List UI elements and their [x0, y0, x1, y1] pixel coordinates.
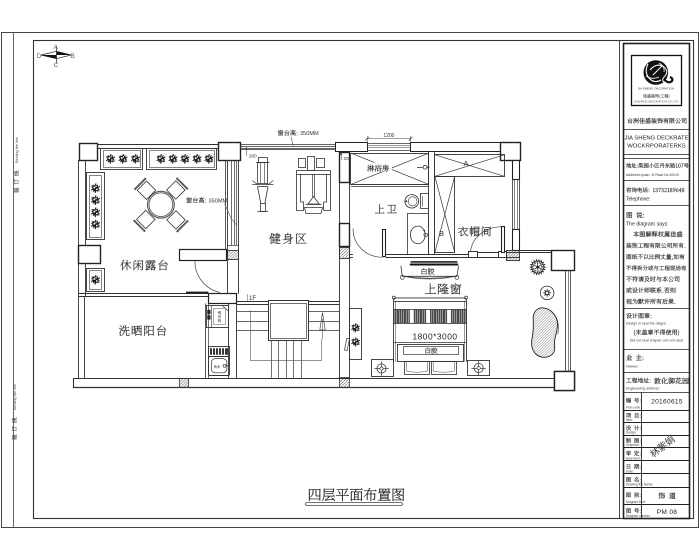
svg-text:1800*3000: 1800*3000 — [412, 332, 457, 342]
svg-text:C: C — [54, 63, 59, 69]
svg-text:Item:: Item: — [626, 418, 633, 422]
svg-text:20160615: 20160615 — [651, 399, 683, 406]
svg-text:Engineering address:: Engineering address: — [626, 387, 660, 391]
svg-text:Did not seal chapter can not u: Did not seal chapter can not used — [630, 339, 684, 343]
svg-text:Binding the line: Binding the line — [15, 137, 19, 163]
svg-text:JIASHENG DECORATION CO.,LTD: JIASHENG DECORATION CO.,LTD — [634, 100, 679, 104]
svg-text:Design in seal the diagra:: Design in seal the diagra: — [626, 322, 667, 326]
svg-text:200: 200 — [249, 154, 257, 159]
svg-text:WOCKRPORATERKS: WOCKRPORATERKS — [627, 144, 686, 150]
svg-text:Graphics:: Graphics: — [626, 443, 640, 447]
svg-text:D: D — [37, 54, 42, 60]
svg-text:A: A — [463, 159, 468, 168]
svg-text:Drawing the Name:: Drawing the Name: — [626, 483, 653, 487]
svg-text:The diagram says:: The diagram says: — [626, 222, 669, 228]
svg-text:Telephone:: Telephone: — [626, 197, 650, 203]
svg-text:B: B — [71, 54, 75, 60]
svg-text:A: A — [54, 45, 58, 51]
svg-text:Diagram kind:: Diagram kind: — [626, 500, 646, 504]
svg-text:Owner:: Owner: — [626, 364, 639, 369]
svg-text:Approved:: Approved: — [626, 456, 641, 460]
svg-text:Design:: Design: — [626, 431, 637, 435]
svg-text:JIA SHENG DECKRATE: JIA SHENG DECKRATE — [624, 136, 688, 142]
svg-text:Plan code:: Plan code: — [626, 406, 641, 410]
svg-text:1F: 1F — [249, 296, 256, 302]
svg-text:B: B — [439, 229, 444, 238]
svg-text:Address:Liyuan, Xi Road No.10x: Address:Liyuan, Xi Road No.10x10 — [626, 173, 679, 177]
svg-text:1200: 1200 — [383, 133, 394, 139]
svg-text:Binding the line: Binding the line — [13, 384, 17, 410]
svg-text:JIA SHENG DECORATION: JIA SHENG DECORATION — [638, 87, 674, 91]
svg-text:350MM: 350MM — [300, 131, 319, 137]
svg-text:Date:: Date: — [626, 469, 634, 473]
svg-text:PM 08: PM 08 — [657, 509, 678, 516]
svg-text:Diagram number:: Diagram number: — [626, 514, 651, 518]
